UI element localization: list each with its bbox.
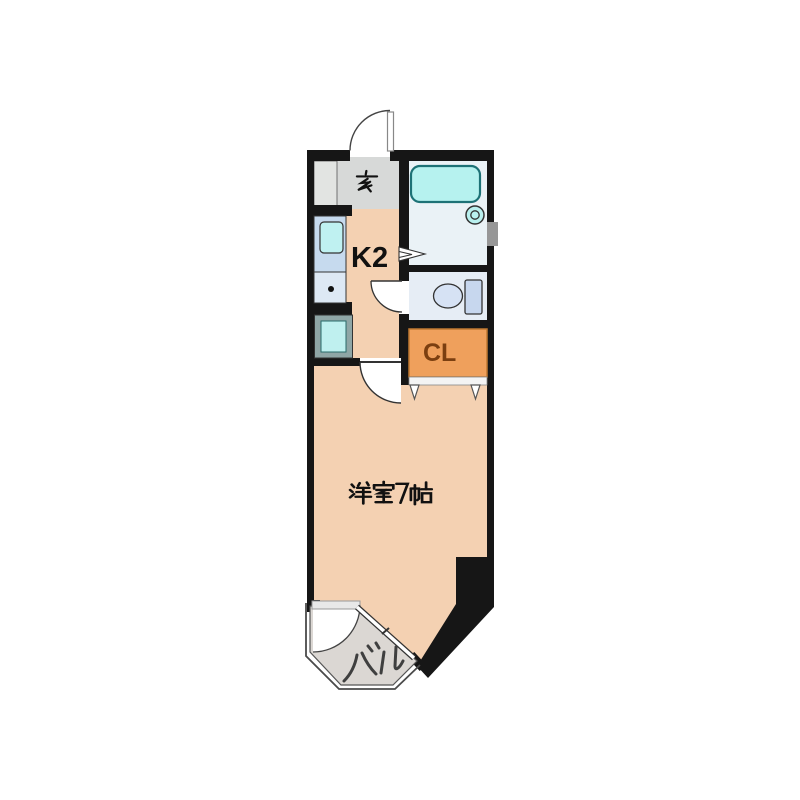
svg-text:CL: CL <box>423 339 456 367</box>
svg-text:K2: K2 <box>351 242 388 274</box>
